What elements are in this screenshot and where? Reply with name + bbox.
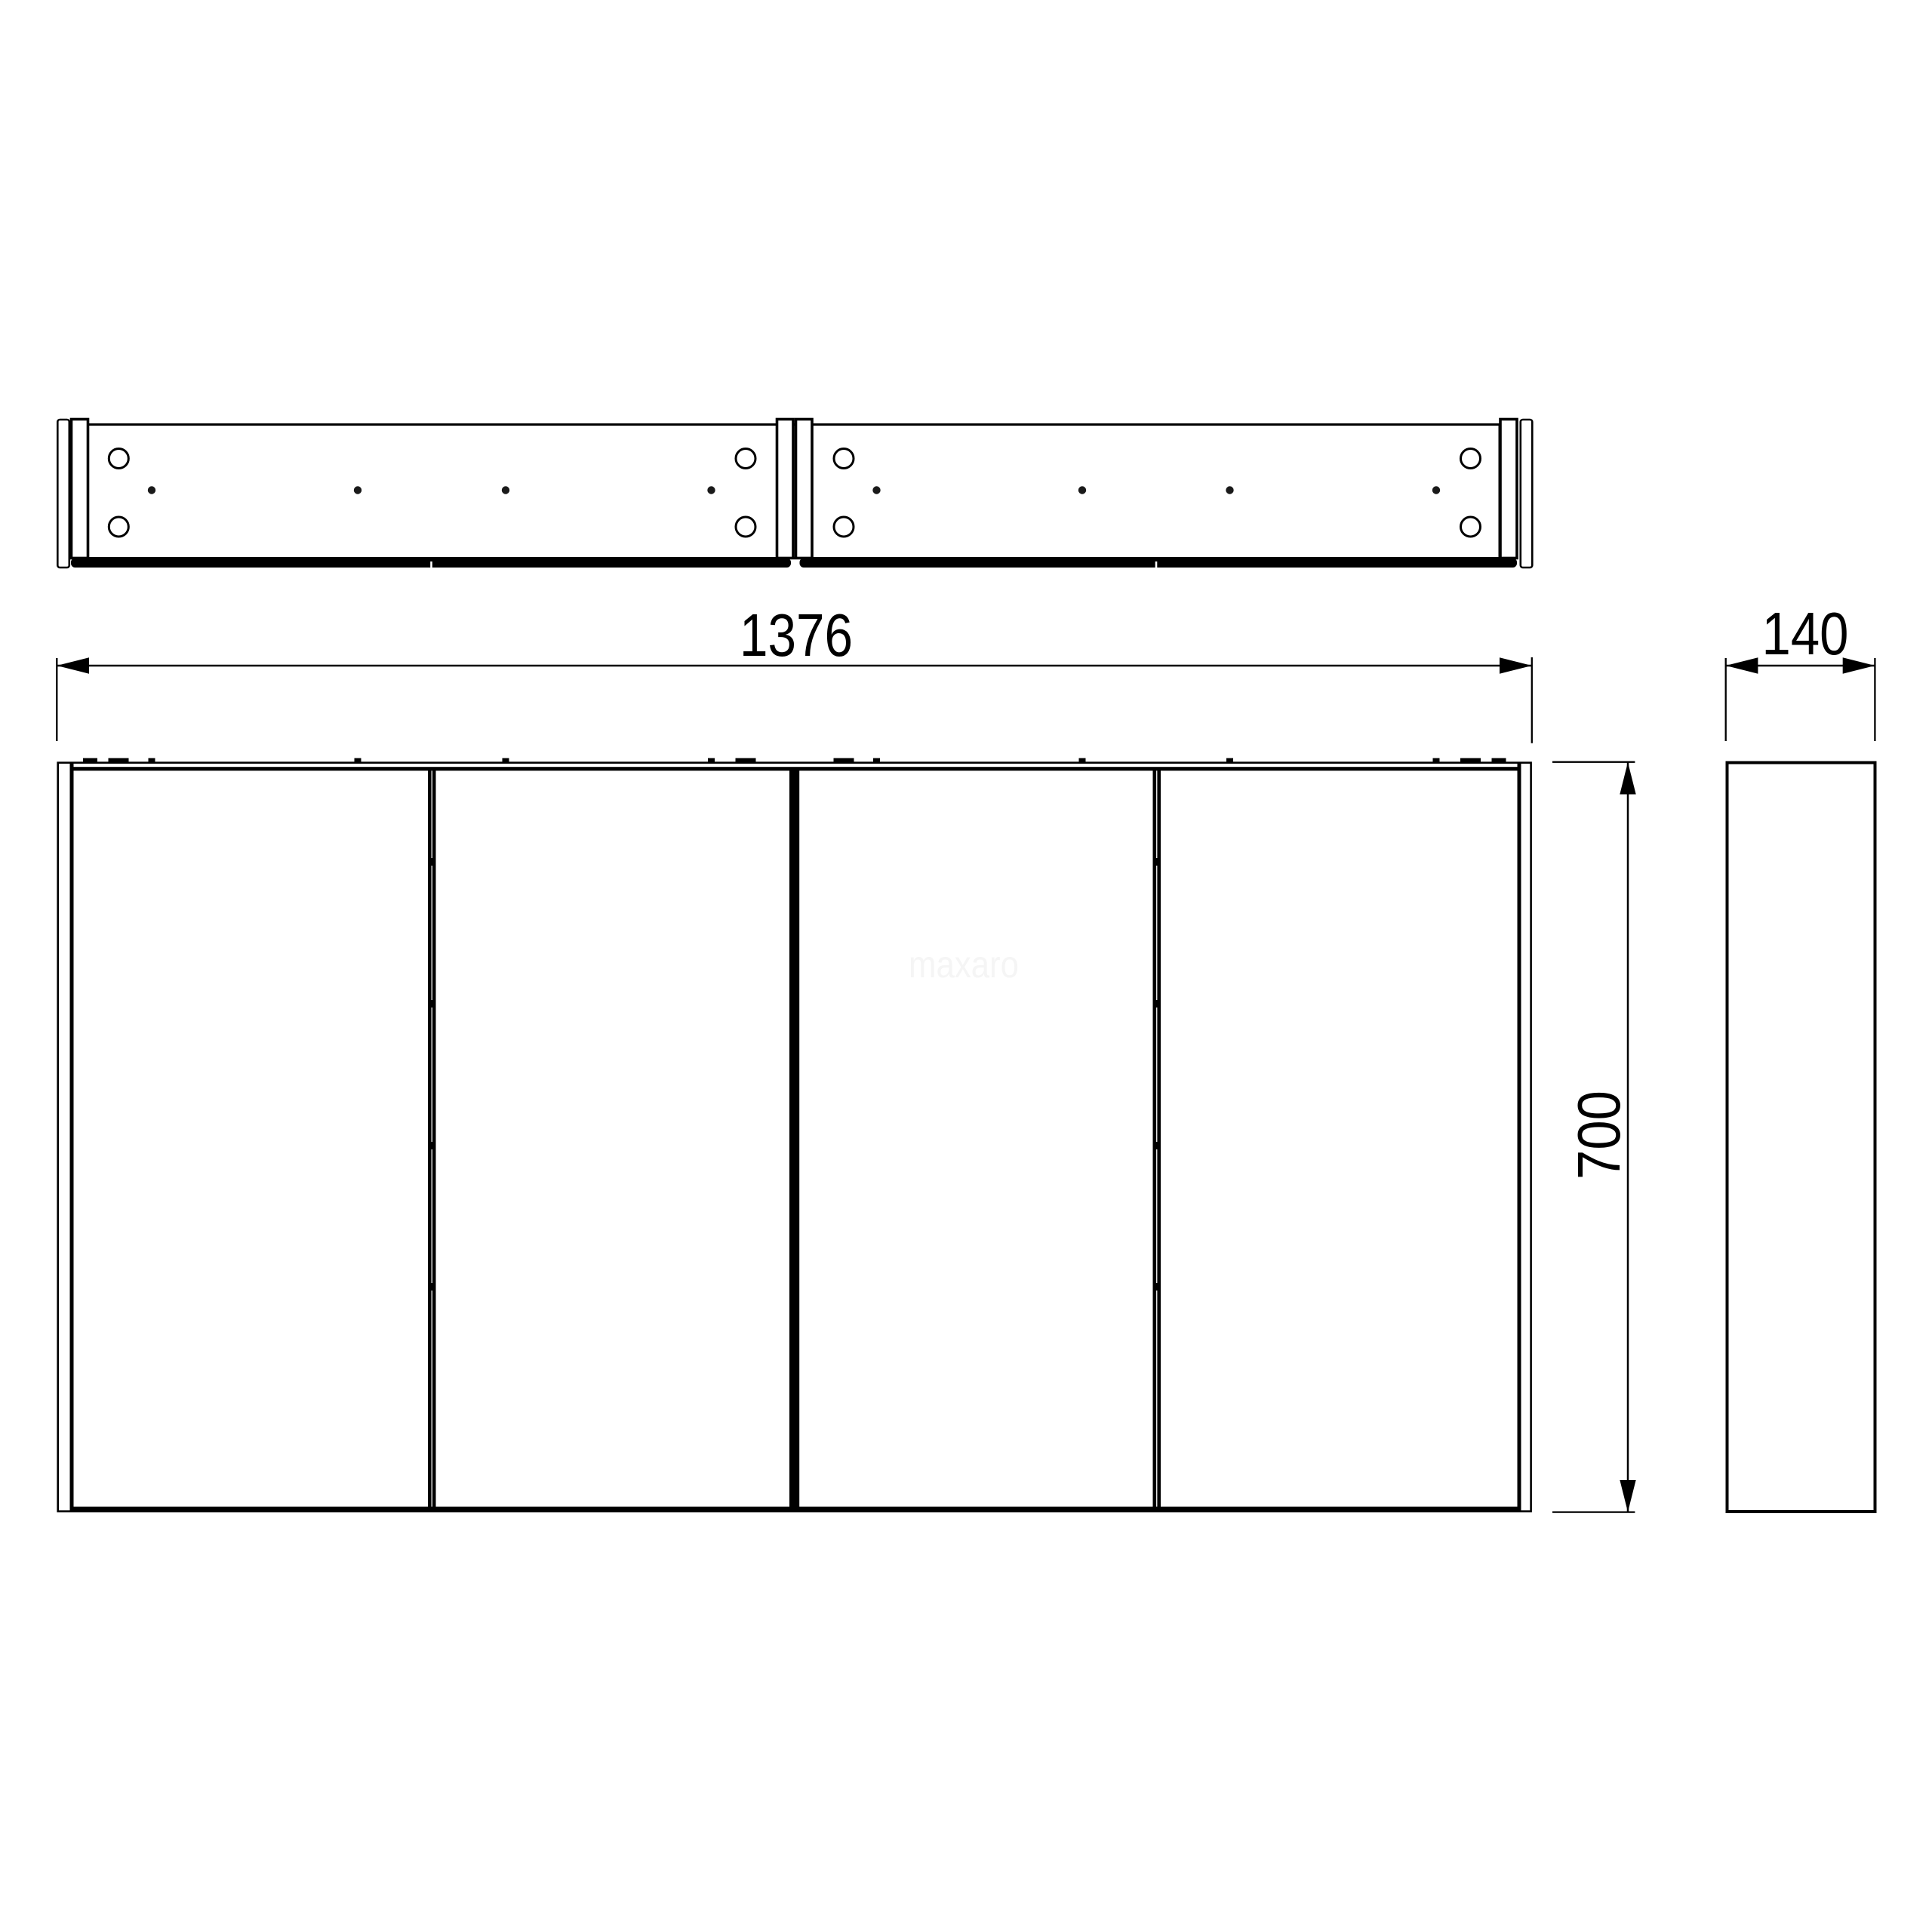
svg-text:1376: 1376 bbox=[740, 601, 853, 669]
svg-text:700: 700 bbox=[1565, 1091, 1632, 1180]
svg-text:140: 140 bbox=[1762, 600, 1849, 667]
svg-text:maxaro: maxaro bbox=[909, 943, 1019, 986]
